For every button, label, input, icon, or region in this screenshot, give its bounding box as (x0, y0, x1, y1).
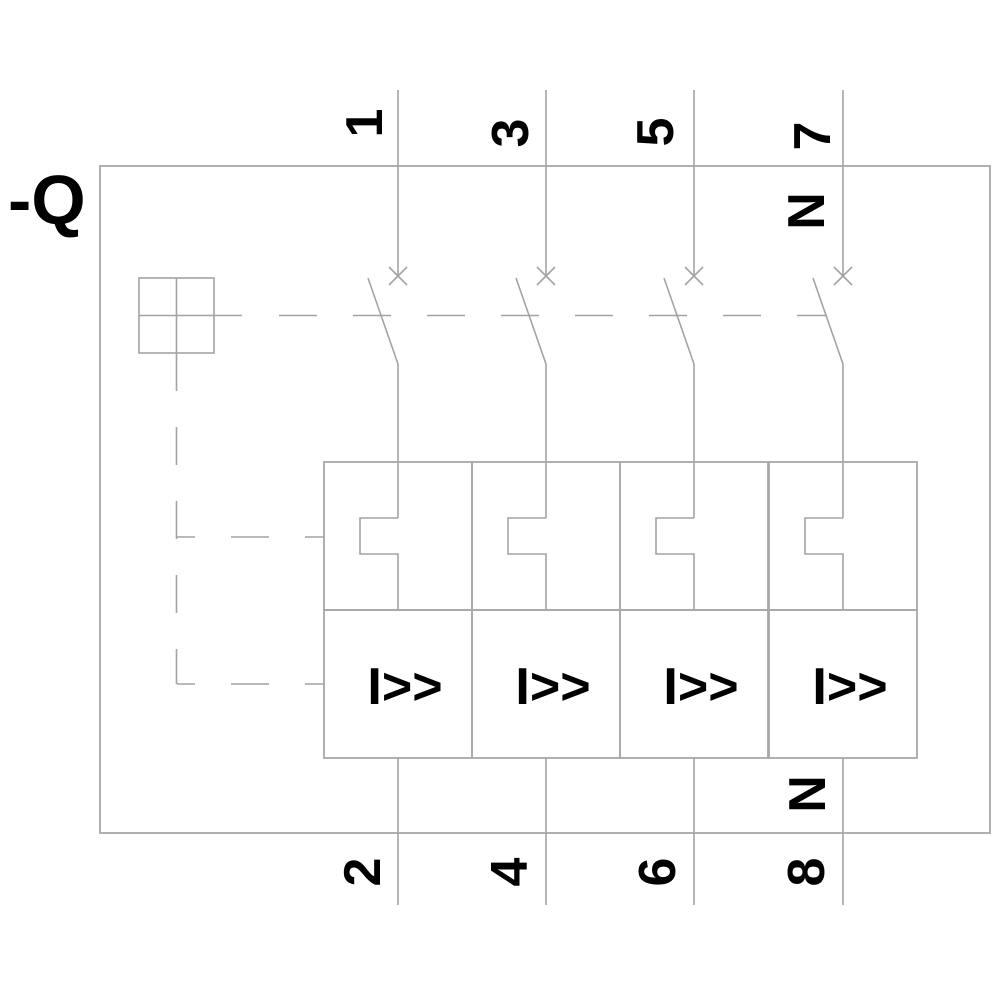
pole-2-thermal-trip-notch (508, 518, 546, 610)
pole-2-contact-blade (516, 278, 546, 364)
pole-4-top-terminal-label: 7 (784, 122, 842, 151)
pole-4-bottom-terminal-label: 8 (778, 858, 836, 887)
pole-1-magnetic-trip-label: I>> (367, 658, 442, 716)
pole-3-top-terminal-label: 5 (627, 118, 685, 147)
device-reference-label: -Q (8, 161, 86, 239)
breaker-outline (100, 166, 990, 833)
pole-4-contact-blade (813, 278, 843, 364)
pole-1-contact-blade (368, 278, 398, 364)
pole-4: I>> 7 N N 8 (769, 90, 917, 905)
pole-4-thermal-trip-notch (805, 518, 843, 610)
pole-1-thermal-trip-notch (360, 518, 398, 610)
pole-4-magnetic-trip-label: I>> (812, 658, 887, 716)
pole-1-top-terminal-label: 1 (336, 109, 394, 138)
pole-3-contact-blade (664, 278, 694, 364)
pole-3: I>> 5 6 (620, 90, 768, 905)
pole-3-thermal-trip-notch (656, 518, 694, 610)
circuit-breaker-schematic-page: -Q I>> 1 2 (0, 0, 1000, 1000)
pole-2-magnetic-trip-label: I>> (515, 658, 590, 716)
pole-1: I>> 1 2 (324, 90, 472, 905)
mechanical-latch-symbol (139, 278, 242, 353)
pole-1-bottom-terminal-label: 2 (334, 858, 392, 887)
pole-4-neutral-label-top: N (778, 192, 836, 230)
pole-2: I>> 3 4 (472, 90, 620, 905)
pole-2-top-terminal-label: 3 (482, 119, 540, 148)
pole-2-bottom-terminal-label: 4 (481, 857, 539, 886)
pole-4-neutral-label-bottom: N (779, 775, 837, 813)
pole-3-magnetic-trip-label: I>> (663, 658, 738, 716)
pole-3-bottom-terminal-label: 6 (629, 858, 687, 887)
circuit-breaker-schematic: -Q I>> 1 2 (0, 0, 1000, 1000)
